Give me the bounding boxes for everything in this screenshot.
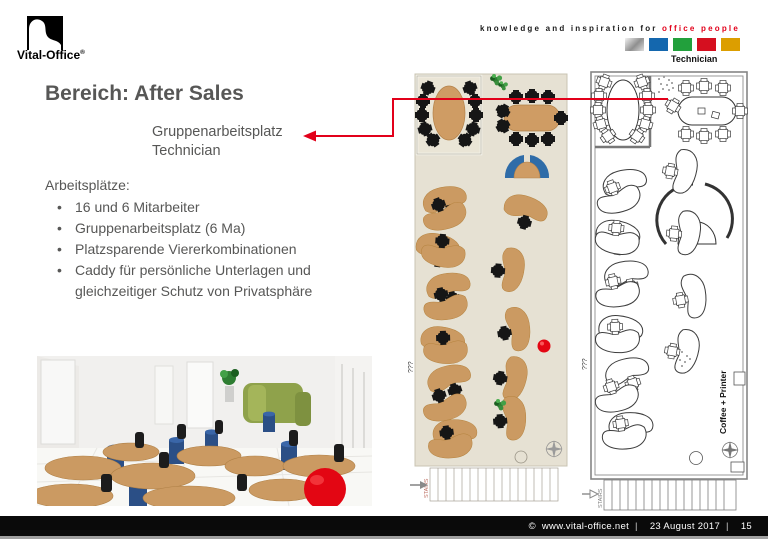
footer-bar: © www.vital-office.net | 23 August 2017 … <box>0 516 768 536</box>
floor-plan-colored: ??? STAIRS <box>408 73 572 505</box>
palette-square-blue <box>649 38 668 51</box>
logo-wordmark: Vital-Office® <box>17 48 85 62</box>
footer-site: www.vital-office.net <box>542 521 629 532</box>
list-heading: Arbeitsplätze: <box>45 175 375 196</box>
callout-line2: Technician <box>152 142 283 161</box>
list-item: •Gruppenarbeitsplatz (6 Ma) <box>45 218 375 239</box>
floor-plan-outline: Coffee + Printer ??? STAIRS <box>580 66 758 512</box>
list-item: •16 und 6 Mitarbeiter <box>45 197 375 218</box>
list-item: •Caddy für persönliche Unterlagen und gl… <box>45 260 375 302</box>
stairs-label: STAIRS <box>598 488 604 508</box>
office-3d-render <box>37 356 372 506</box>
tagline-red: office people <box>662 24 740 33</box>
workplace-list: Arbeitsplätze: •16 und 6 Mitarbeiter •Gr… <box>45 175 375 302</box>
bullet-list: •16 und 6 Mitarbeiter •Gruppenarbeitspla… <box>45 197 375 302</box>
stairs-colored <box>430 468 558 501</box>
palette-square-red <box>697 38 716 51</box>
bullet-icon: • <box>45 197 75 218</box>
coffee-printer-label: Coffee + Printer <box>718 370 728 434</box>
footer-date: 23 August 2017 <box>650 521 720 532</box>
stairs-outline <box>604 480 736 510</box>
palette-square-gold <box>721 38 740 51</box>
page-title: Bereich: After Sales <box>45 82 244 106</box>
unknown-area-label: ??? <box>582 358 589 370</box>
technician-plan-label: Technician <box>671 54 717 64</box>
footer-shadow <box>0 536 768 539</box>
brand-color-squares <box>625 38 740 51</box>
page-number: 15 <box>741 521 752 532</box>
tagline: knowledge and inspiration for office peo… <box>480 24 740 33</box>
bullet-icon: • <box>45 239 75 260</box>
red-ball-icon <box>538 340 551 353</box>
vital-office-logo: Vital-Office® <box>16 10 106 62</box>
bullet-icon: • <box>45 260 75 302</box>
callout-text: Gruppenarbeitsplatz Technician <box>152 123 283 161</box>
unknown-area-label: ??? <box>408 361 415 373</box>
wall-cabinet <box>734 372 745 385</box>
list-item: •Platzsparende Viererkombinationen <box>45 239 375 260</box>
meeting-room-colored <box>415 76 483 154</box>
direction-arrow-icon <box>582 490 598 498</box>
yin-yang-logo-icon <box>27 16 63 50</box>
bullet-icon: • <box>45 218 75 239</box>
arrowhead-icon <box>303 131 316 142</box>
palette-square-green <box>673 38 692 51</box>
tagline-black: knowledge and inspiration for <box>480 24 658 33</box>
callout-line1: Gruppenarbeitsplatz <box>152 123 283 142</box>
palette-square-silver <box>625 38 644 51</box>
wall-cabinet <box>731 462 744 472</box>
slide: Vital-Office® knowledge and inspiration … <box>0 0 768 543</box>
stairs-label: STAIRS <box>424 478 430 498</box>
copyright-icon: © <box>529 521 536 532</box>
registered-mark: ® <box>80 49 85 56</box>
